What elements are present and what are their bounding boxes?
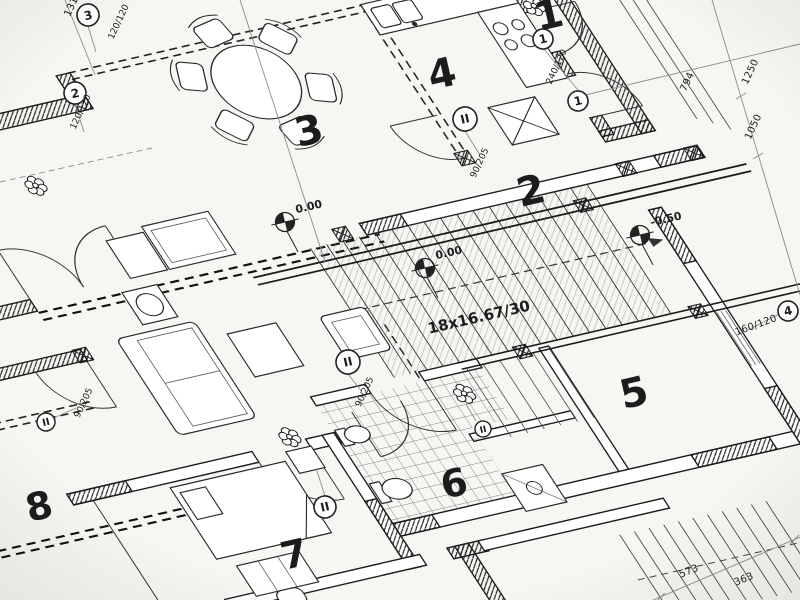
floor-plan: 1 2 3 4 5 6 7 8 18x16.67/30 0.00 0.00 [0, 0, 800, 600]
blueprint-photo: 1 2 3 4 5 6 7 8 18x16.67/30 0.00 0.00 [0, 0, 800, 600]
